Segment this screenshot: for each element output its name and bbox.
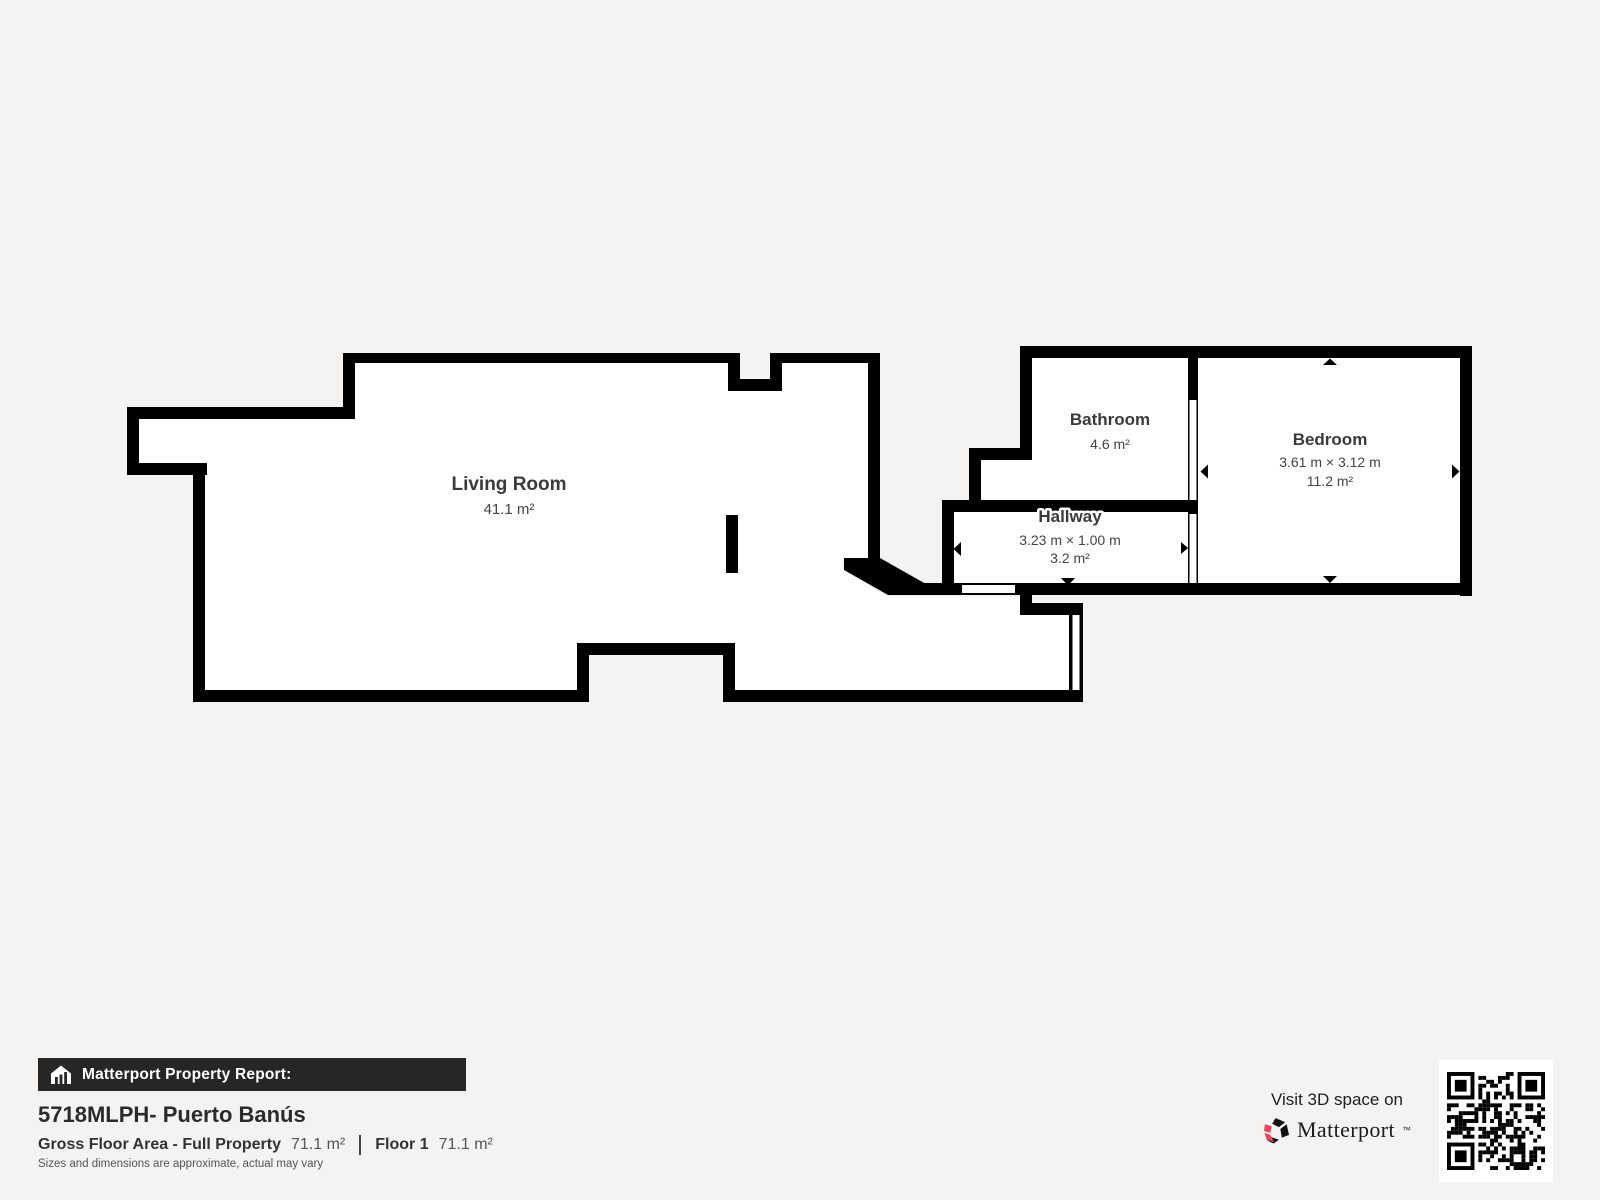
gross-floor-area-label: Gross Floor Area - Full Property	[38, 1136, 281, 1154]
floorplan-canvas: Living Room 41.1 m² Bathroom 4.6 m² Bedr…	[0, 0, 1600, 1200]
bedroom-label: Bedroom	[1293, 430, 1368, 449]
area-metrics: Gross Floor Area - Full Property 71.1 m²…	[38, 1135, 493, 1155]
bathroom-floor	[981, 358, 1188, 500]
property-report-house-icon	[50, 1065, 72, 1085]
matterport-logo: Matterport ™	[1252, 1115, 1422, 1145]
corridor-window	[1073, 615, 1080, 690]
matterport-wordmark: Matterport	[1297, 1117, 1395, 1143]
property-title: 5718MLPH- Puerto Banús	[38, 1102, 306, 1128]
top-notch-recess	[740, 353, 770, 379]
report-banner-label: Matterport Property Report:	[82, 1066, 292, 1084]
disclaimer-text: Sizes and dimensions are approximate, ac…	[38, 1158, 323, 1170]
matterport-floorplan-report: { "page": { "background": "#f4f3f1", "wa…	[0, 0, 1600, 1200]
report-banner: Matterport Property Report:	[38, 1058, 466, 1091]
bathroom-label: Bathroom	[1070, 410, 1150, 429]
visit-3d-space-text: Visit 3D space on	[1252, 1090, 1422, 1110]
living-room-label: Living Room	[451, 474, 566, 495]
matterport-pinwheel-icon	[1263, 1117, 1290, 1144]
floor-value: 71.1 m²	[439, 1136, 493, 1154]
bathroom-door-channel	[1190, 400, 1197, 500]
hallway-dimensions: 3.23 m × 1.00 m	[1019, 532, 1121, 548]
bedroom-area: 11.2 m²	[1307, 473, 1354, 489]
living-room-area: 41.1 m²	[484, 501, 535, 518]
bedroom-floor	[1198, 358, 1460, 583]
qr-code	[1447, 1072, 1545, 1170]
floor-label: Floor 1	[375, 1136, 428, 1154]
bathroom-area: 4.6 m²	[1090, 436, 1130, 452]
metrics-divider	[359, 1135, 361, 1155]
bedroom-door-channel	[1190, 514, 1197, 583]
hallway-label: Hallway	[1038, 507, 1102, 526]
hallway-area: 3.2 m²	[1050, 550, 1090, 566]
gross-floor-area-value: 71.1 m²	[291, 1136, 345, 1154]
bedroom-dimensions: 3.61 m × 3.12 m	[1279, 454, 1381, 470]
trademark-symbol: ™	[1402, 1126, 1411, 1135]
hallway-door-opening	[962, 585, 1015, 593]
qr-code-card	[1439, 1060, 1553, 1182]
